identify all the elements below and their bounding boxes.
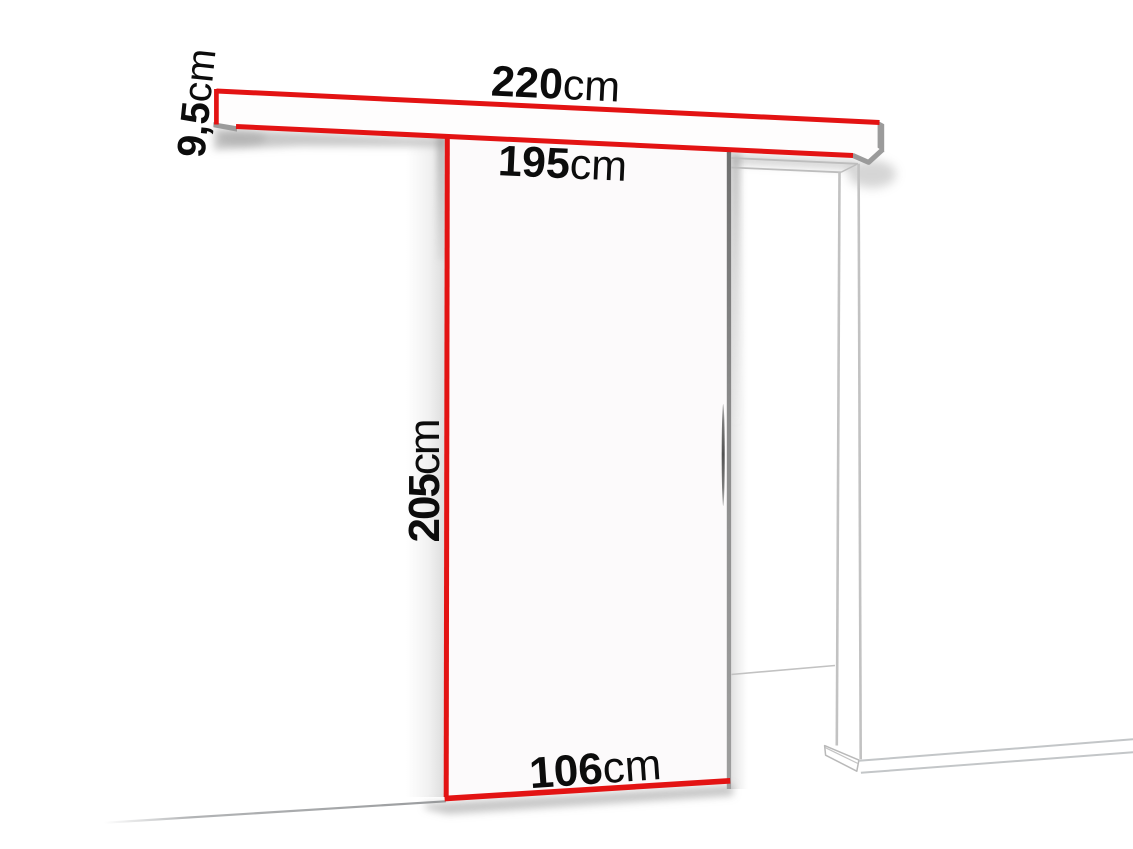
svg-text:195cm: 195cm <box>497 137 628 191</box>
svg-text:220cm: 220cm <box>490 57 621 111</box>
svg-text:205cm: 205cm <box>400 420 449 542</box>
svg-text:106cm: 106cm <box>528 740 663 798</box>
